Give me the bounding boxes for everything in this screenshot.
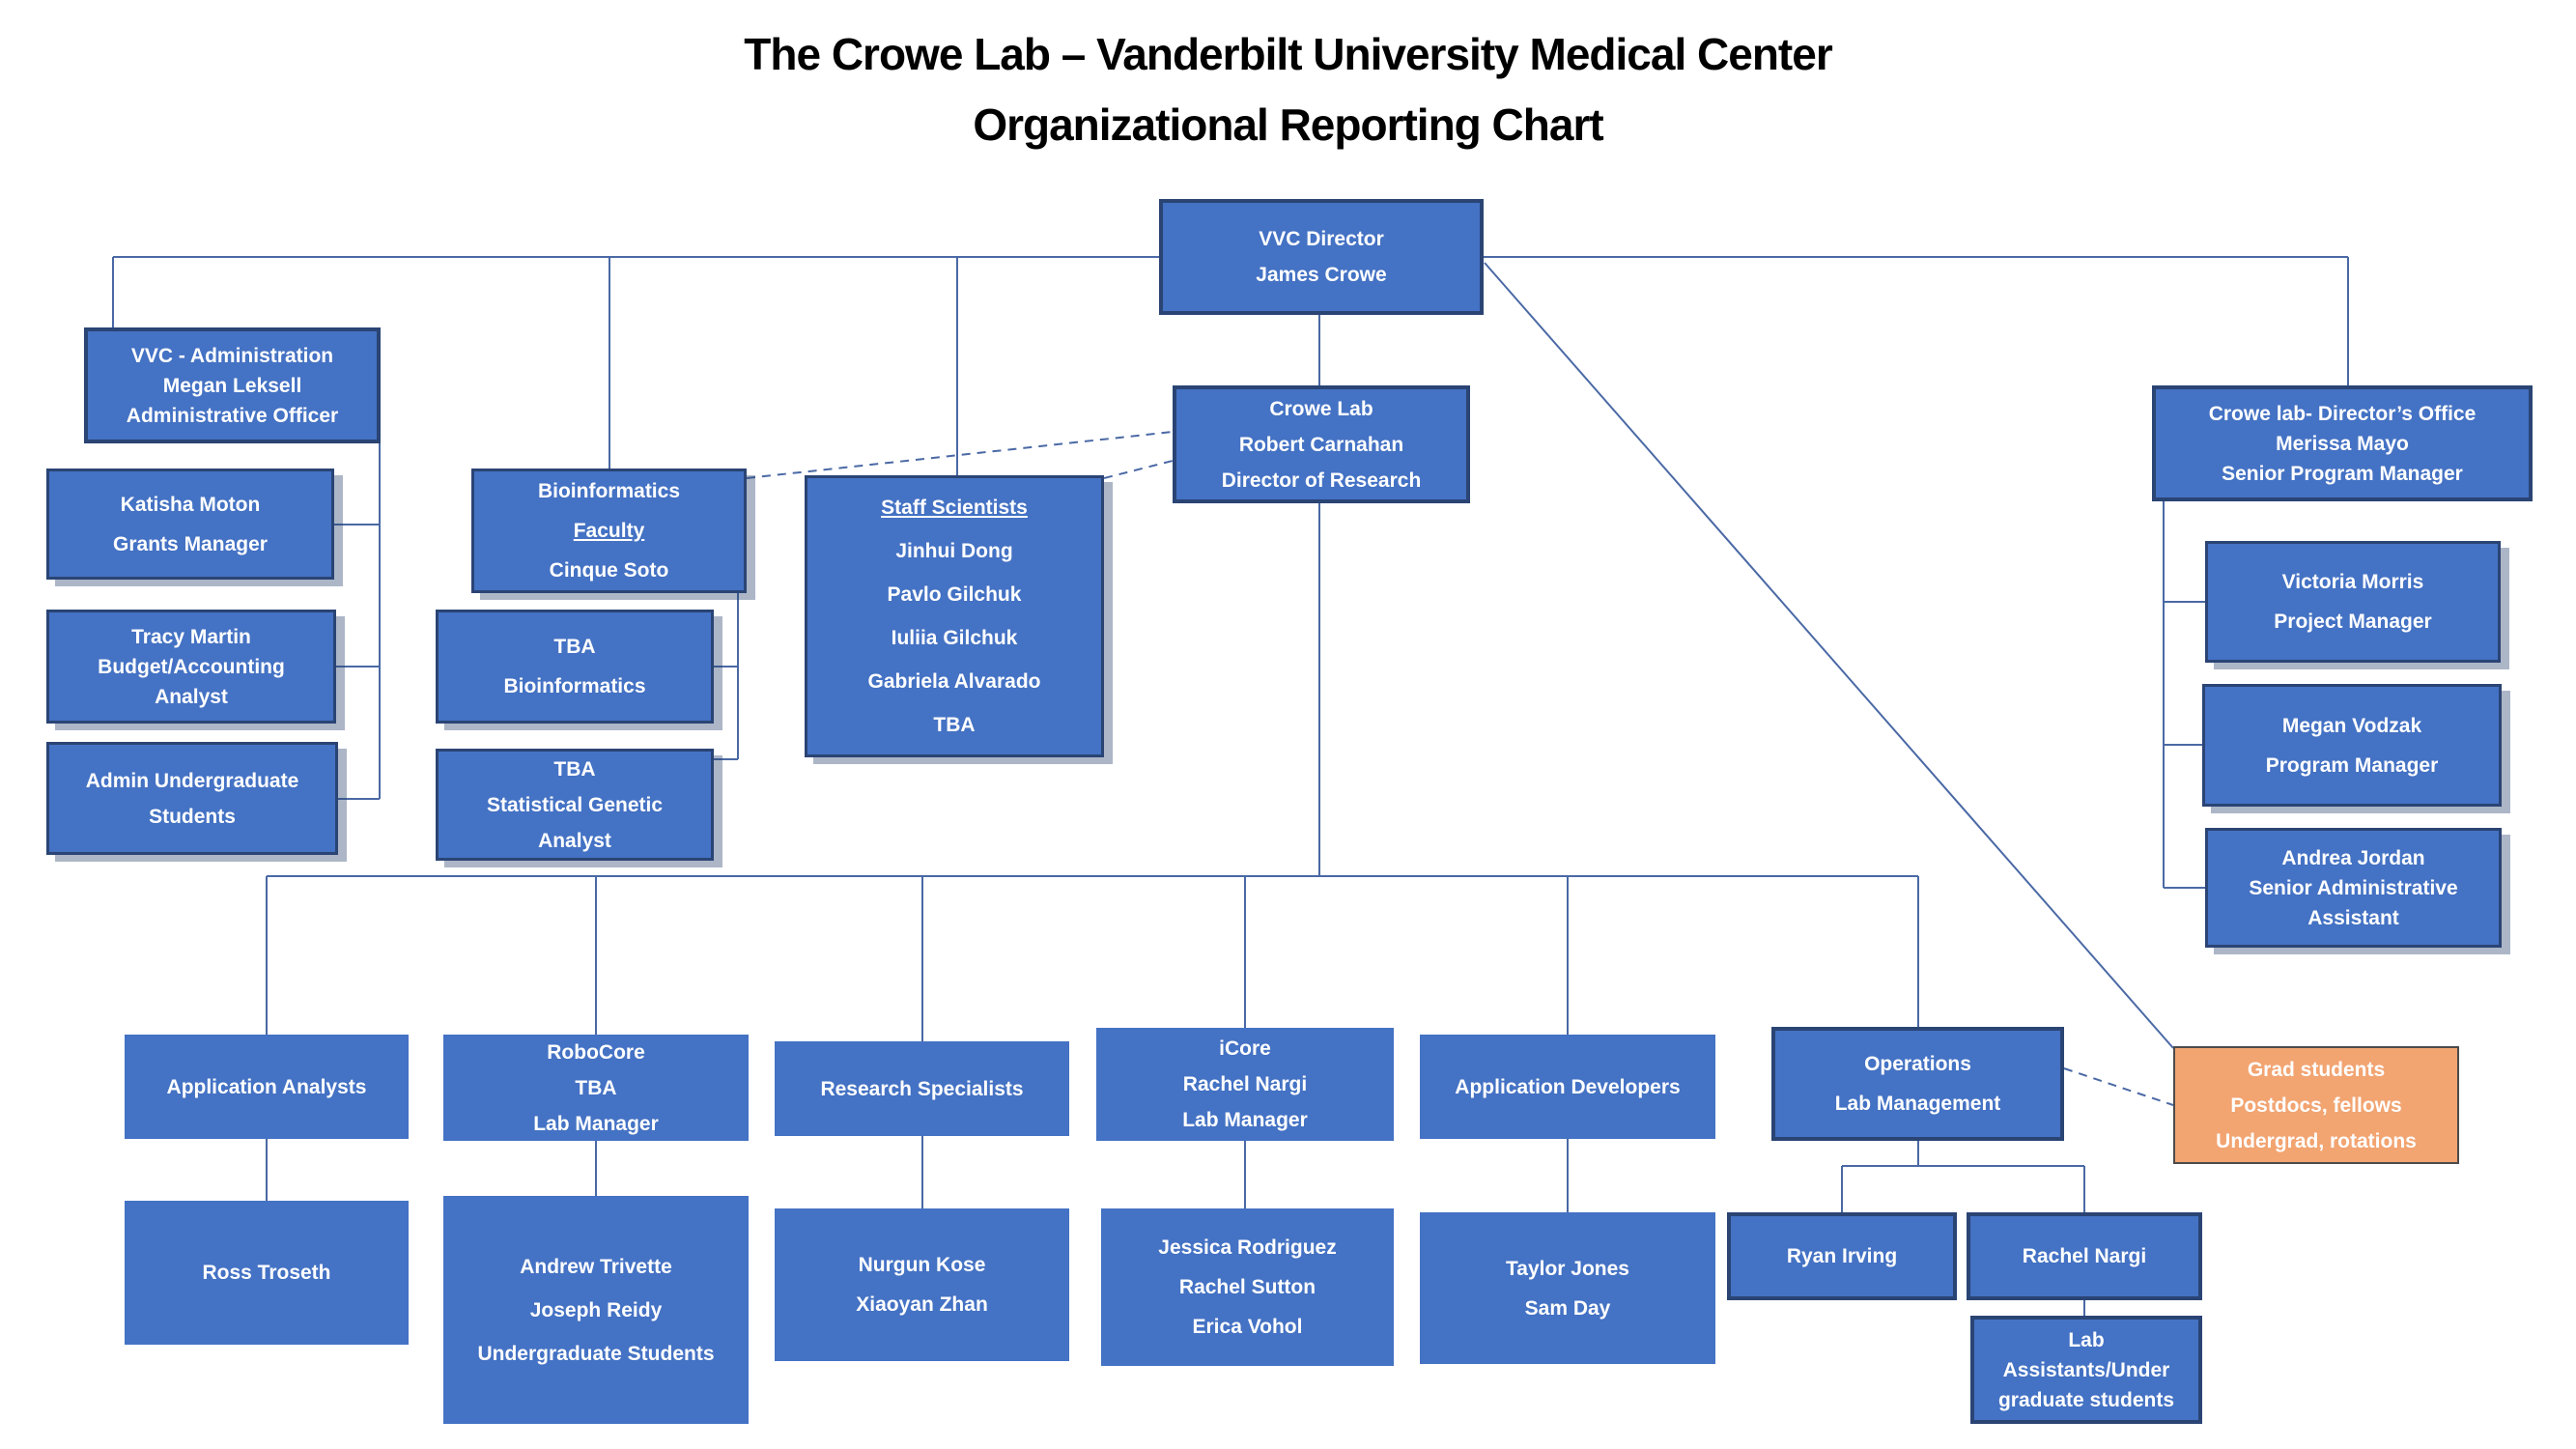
org-box-text-line: Assistant [2307,903,2399,933]
org-box-text-line: Lab Management [1835,1084,2001,1123]
org-box-text-line: Crowe lab- Director’s Office [2209,399,2477,429]
org-box-text-line: Jessica Rodriguez [1158,1228,1336,1267]
org-box-lab-assistants: LabAssistants/Undergraduate students [1970,1316,2202,1424]
org-box-text-line: Rachel Sutton [1179,1267,1316,1307]
org-box-bioinformatics: BioinformaticsFacultyCinque Soto [471,469,747,593]
org-box-text-line: Erica Vohol [1193,1307,1303,1347]
org-box-text-line: graduate students [1998,1385,2174,1415]
org-box-text-line: Assistants/Under [2003,1355,2170,1385]
org-box-operations: OperationsLab Management [1771,1027,2064,1141]
org-box-app-developers: Application Developers [1420,1035,1715,1139]
org-box-text-line: Bioinformatics [503,667,645,706]
org-box-text-line: Analyst [538,823,611,859]
org-box-text-line: Sam Day [1525,1289,1611,1328]
org-box-text-line: RoboCore [547,1035,645,1070]
org-box-text-line: Ryan Irving [1787,1238,1897,1274]
org-box-text-line: Robert Carnahan [1239,427,1403,463]
org-box-text-line: Megan Vodzak [2282,706,2421,746]
org-box-text-line: Grad students [2248,1052,2385,1088]
org-box-ryan: Ryan Irving [1727,1212,1957,1300]
org-box-text-line: Crowe Lab [1269,391,1373,427]
org-box-text-line: Ross Troseth [202,1255,330,1291]
org-box-text-line: Victoria Morris [2282,562,2424,602]
org-box-text-line: TBA [553,752,595,787]
org-box-text-line: Undergraduate Students [477,1332,714,1376]
org-box-text-line: Megan Leksell [163,371,302,401]
org-box-text-line: Undergrad, rotations [2216,1123,2417,1159]
org-box-text-line: Xiaoyan Zhan [856,1285,988,1324]
org-box-text-line: Gabriela Alvarado [868,660,1041,703]
org-box-text-line: Taylor Jones [1506,1249,1629,1289]
org-box-tba-bio: TBABioinformatics [436,610,714,724]
org-box-text-line: Students [149,799,236,835]
org-box-text-line: Research Specialists [820,1071,1023,1107]
org-box-ross: Ross Troseth [125,1201,409,1345]
org-box-text-line: Postdocs, fellows [2230,1088,2401,1123]
org-box-nurgun: Nurgun KoseXiaoyan Zhan [775,1208,1069,1361]
org-box-megan-vodzak: Megan VodzakProgram Manager [2202,684,2502,807]
org-box-text-line: Jinhui Dong [895,529,1012,573]
org-box-text-line: Staff Scientists [881,486,1028,529]
org-box-text-line: Project Manager [2274,602,2431,641]
org-box-text-line: VVC Director [1259,221,1384,257]
org-box-grad-students: Grad studentsPostdocs, fellowsUndergrad,… [2173,1046,2459,1164]
org-box-rachel-nargi: Rachel Nargi [1967,1212,2202,1300]
org-box-tracy: Tracy MartinBudget/AccountingAnalyst [46,610,336,724]
org-box-text-line: Grants Manager [113,525,268,564]
org-box-text-line: Iuliia Gilchuk [892,616,1018,660]
org-box-katisha: Katisha MotonGrants Manager [46,469,334,580]
org-box-text-line: Lab Manager [533,1106,659,1142]
org-box-tba-stat: TBAStatistical GeneticAnalyst [436,749,714,861]
org-box-text-line: Rachel Nargi [1183,1066,1307,1102]
org-box-taylor: Taylor JonesSam Day [1420,1212,1715,1364]
org-box-text-line: Senior Administrative [2249,873,2457,903]
org-box-text-line: Lab Manager [1182,1102,1308,1138]
org-box-text-line: Operations [1864,1044,1971,1084]
org-box-robocore: RoboCoreTBALab Manager [443,1035,749,1141]
org-box-text-line: Pavlo Gilchuk [888,573,1022,616]
org-box-andrew: Andrew TrivetteJoseph ReidyUndergraduate… [443,1196,749,1424]
org-box-text-line: Statistical Genetic [487,787,663,823]
org-box-jessica: Jessica RodriguezRachel SuttonErica Voho… [1101,1208,1394,1366]
org-box-andrea: Andrea JordanSenior AdministrativeAssist… [2205,828,2502,948]
org-box-text-line: Administrative Officer [127,401,338,431]
org-chart-canvas: The Crowe Lab – Vanderbilt University Me… [0,0,2576,1449]
org-box-text-line: TBA [575,1070,616,1106]
org-box-text-line: Budget/Accounting [98,652,285,682]
org-box-text-line: Katisha Moton [121,485,261,525]
org-box-text-line: Tracy Martin [131,622,251,652]
org-box-text-line: Director of Research [1222,463,1422,498]
org-box-text-line: Application Developers [1455,1069,1680,1105]
org-box-admin-undergrad: Admin UndergraduateStudents [46,742,338,855]
org-box-text-line: Faculty [574,511,645,551]
org-box-icore: iCoreRachel NargiLab Manager [1096,1028,1394,1141]
org-box-victoria: Victoria MorrisProject Manager [2205,541,2501,663]
org-box-text-line: TBA [933,703,975,747]
org-box-text-line: Program Manager [2266,746,2439,785]
org-box-crowe-lab: Crowe LabRobert CarnahanDirector of Rese… [1173,385,1470,503]
org-box-text-line: Andrea Jordan [2281,843,2424,873]
org-box-text-line: James Crowe [1256,257,1386,293]
org-box-text-line: TBA [553,627,595,667]
org-box-text-line: Lab [2068,1325,2104,1355]
org-box-staff-scientists: Staff ScientistsJinhui DongPavlo Gilchuk… [805,475,1104,757]
org-box-vvc-director: VVC DirectorJames Crowe [1159,199,1484,315]
org-box-research-specialists: Research Specialists [775,1041,1069,1136]
org-box-text-line: Andrew Trivette [520,1245,672,1289]
org-box-vvc-admin: VVC - AdministrationMegan LeksellAdminis… [84,327,381,443]
org-box-text-line: Admin Undergraduate [86,763,299,799]
org-box-text-line: Merissa Mayo [2276,429,2409,459]
org-box-app-analysts: Application Analysts [125,1035,409,1139]
org-box-text-line: Application Analysts [167,1069,367,1105]
org-box-text-line: Nurgun Kose [859,1245,986,1285]
org-box-text-line: VVC - Administration [131,341,333,371]
org-box-text-line: Rachel Nargi [2023,1238,2146,1274]
org-box-text-line: Joseph Reidy [530,1289,663,1332]
org-box-directors-office: Crowe lab- Director’s OfficeMerissa Mayo… [2152,385,2533,501]
org-box-text-line: Cinque Soto [550,551,669,590]
org-box-text-line: Analyst [155,682,228,712]
org-box-text-line: iCore [1219,1031,1271,1066]
org-box-text-line: Senior Program Manager [2222,459,2463,489]
org-box-text-line: Bioinformatics [538,471,680,511]
